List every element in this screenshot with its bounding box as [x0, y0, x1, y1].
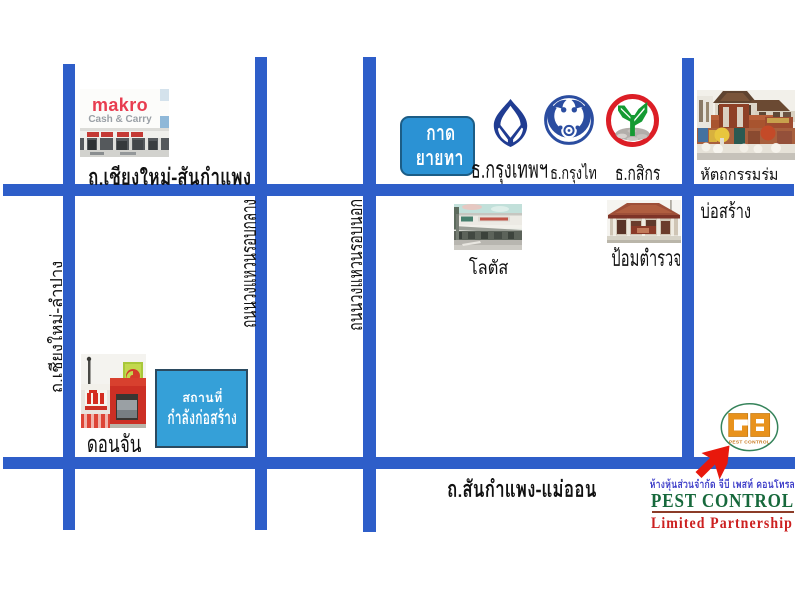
svg-text:makro: makro: [92, 95, 148, 115]
svg-text:Cash & Carry: Cash & Carry: [88, 114, 152, 125]
svg-text:PEST CONTROL: PEST CONTROL: [729, 440, 770, 446]
